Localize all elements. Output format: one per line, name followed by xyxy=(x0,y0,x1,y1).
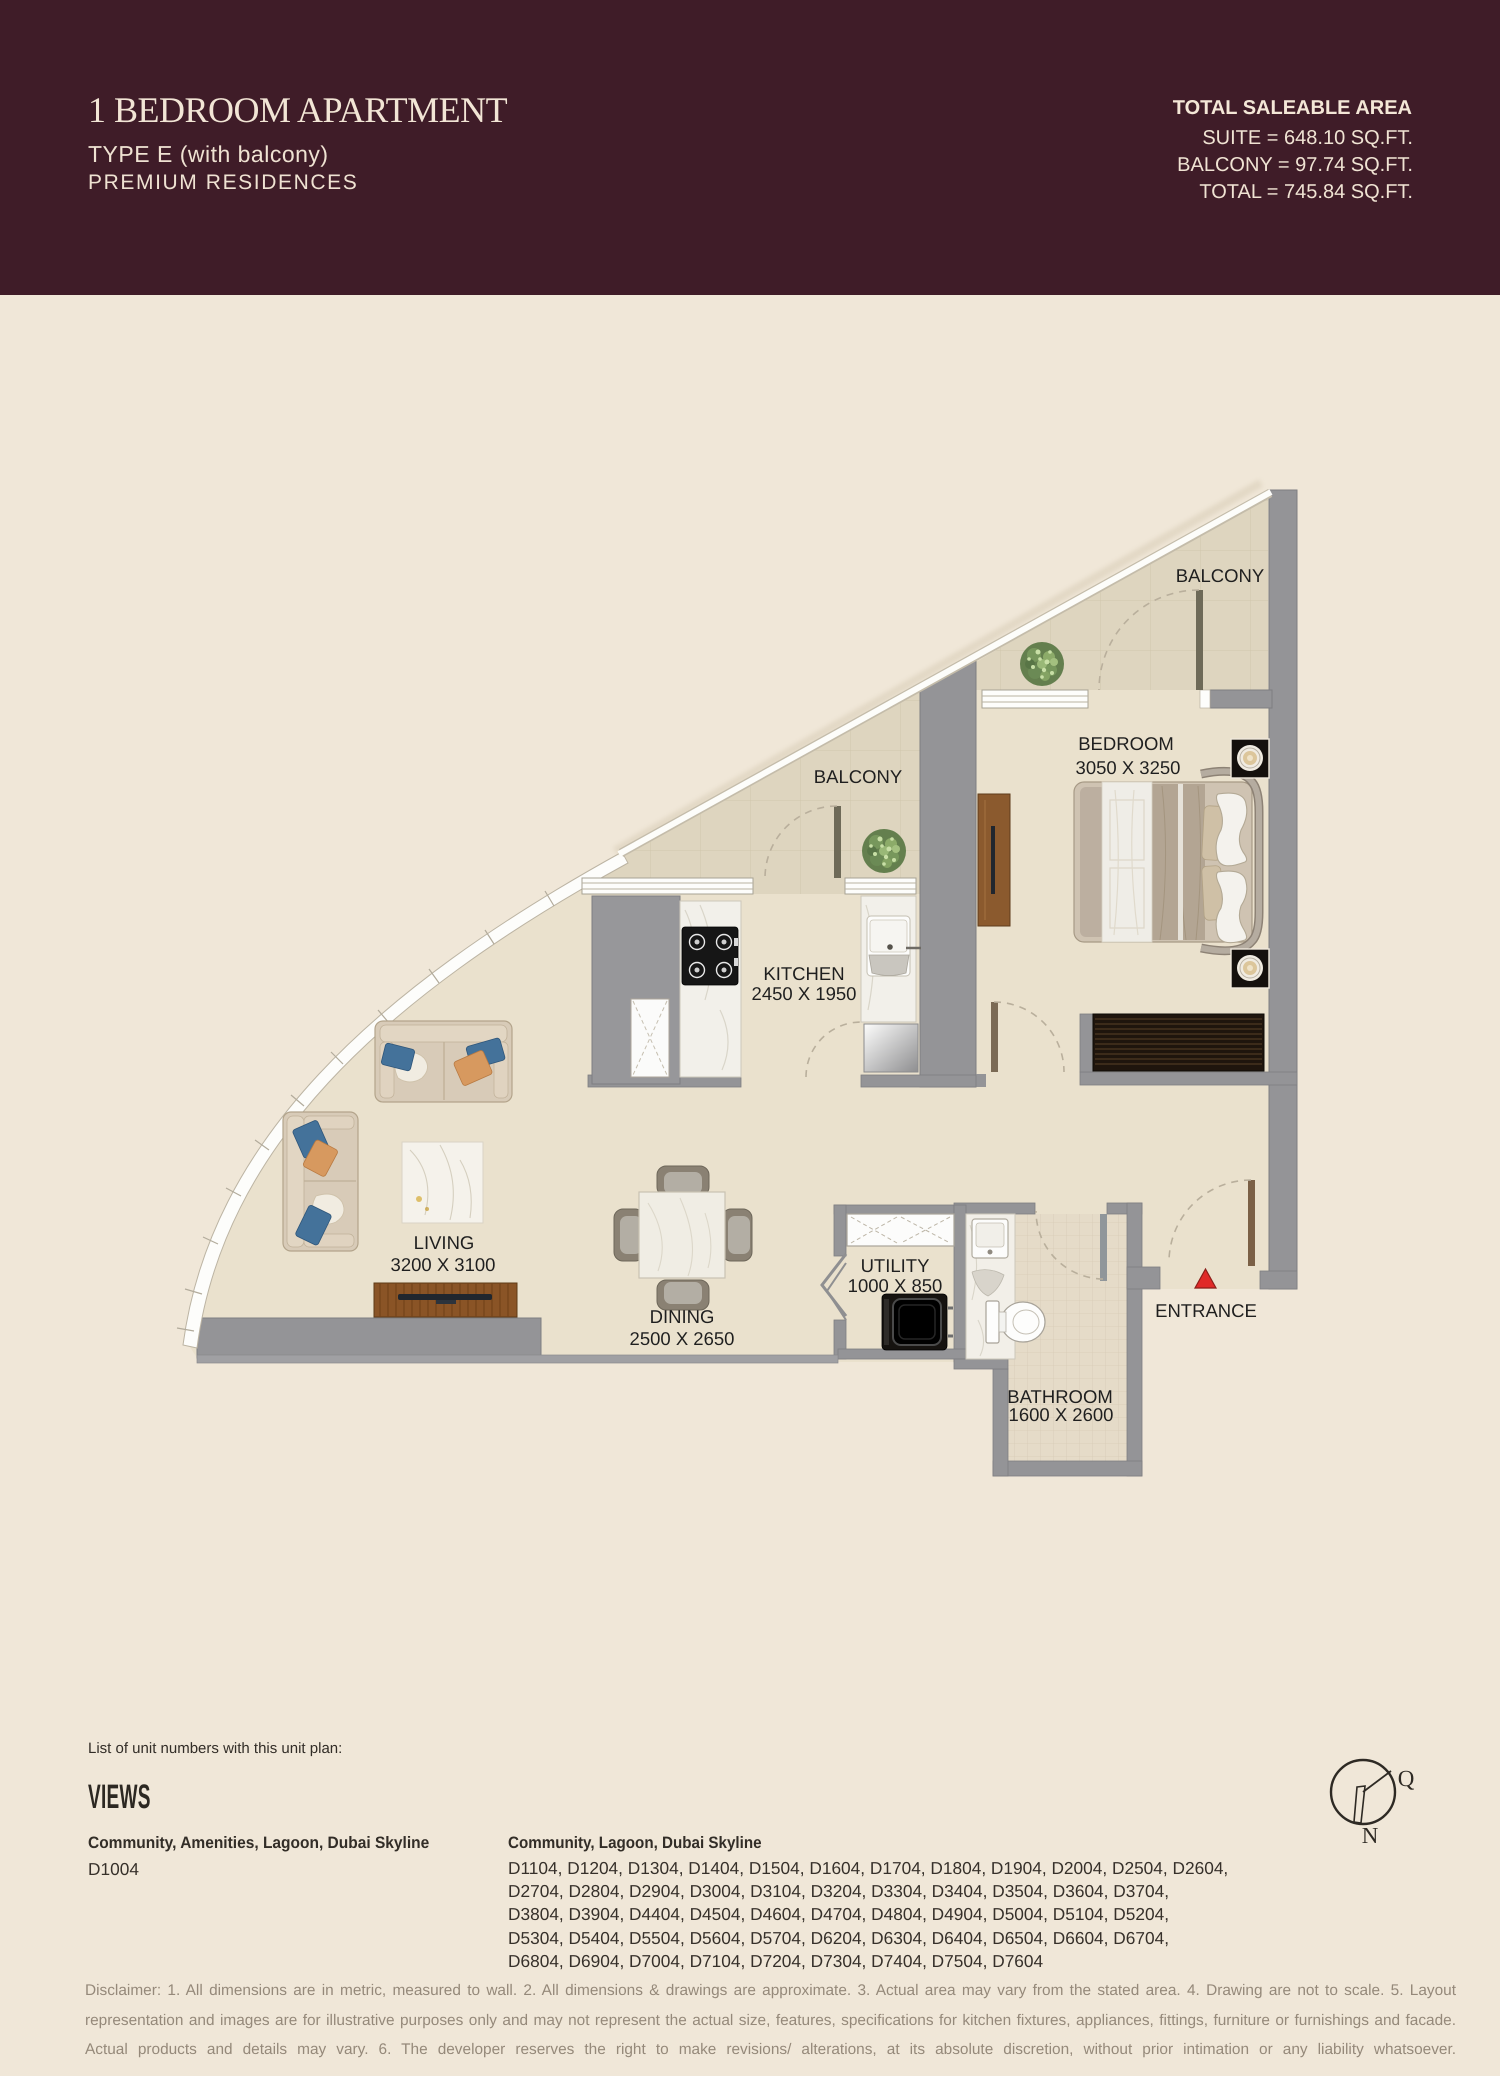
svg-text:BALCONY: BALCONY xyxy=(814,766,902,787)
svg-text:BEDROOM: BEDROOM xyxy=(1078,733,1174,754)
svg-text:BALCONY: BALCONY xyxy=(1176,565,1264,586)
svg-text:UTILITY: UTILITY xyxy=(861,1255,930,1276)
svg-text:KITCHEN: KITCHEN xyxy=(763,963,844,984)
svg-text:1600 X 2600: 1600 X 2600 xyxy=(1009,1404,1114,1425)
svg-text:2500 X 2650: 2500 X 2650 xyxy=(630,1328,735,1349)
svg-text:3050 X 3250: 3050 X 3250 xyxy=(1076,757,1181,778)
svg-text:N: N xyxy=(1362,1823,1379,1848)
svg-text:Q: Q xyxy=(1398,1766,1415,1791)
svg-text:LIVING: LIVING xyxy=(414,1232,475,1253)
svg-text:3200 X 3100: 3200 X 3100 xyxy=(391,1254,496,1275)
svg-text:1000 X 850: 1000 X 850 xyxy=(848,1275,943,1296)
svg-text:2450 X 1950: 2450 X 1950 xyxy=(752,983,857,1004)
svg-text:DINING: DINING xyxy=(650,1306,715,1327)
svg-text:ENTRANCE: ENTRANCE xyxy=(1155,1300,1257,1321)
